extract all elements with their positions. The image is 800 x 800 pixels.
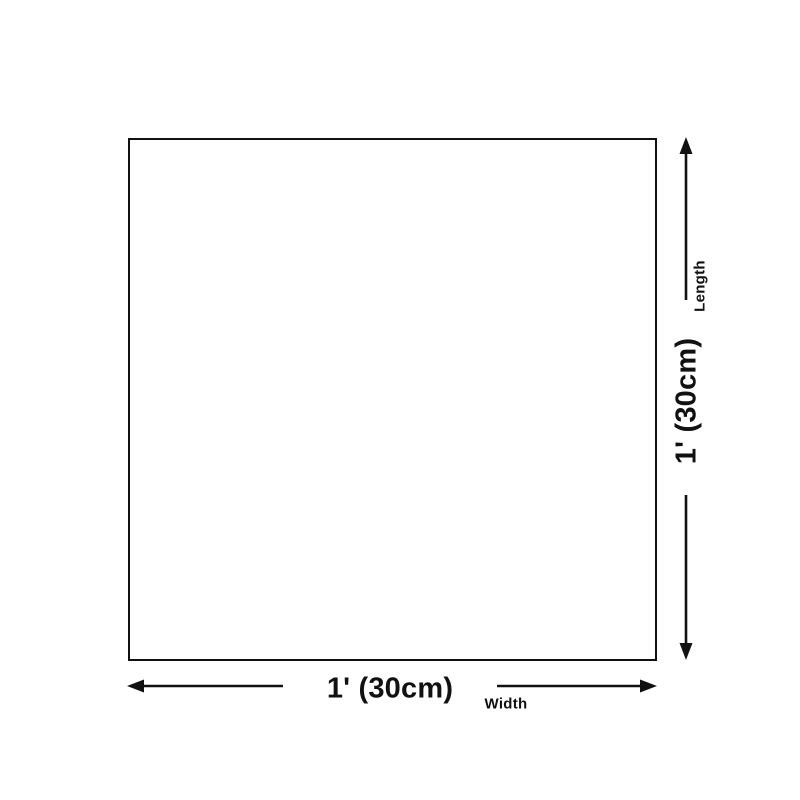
length-value-label: 1' (30cm)	[671, 338, 704, 464]
width-arrowhead-left-icon	[127, 680, 144, 693]
product-outline-box	[128, 138, 657, 661]
width-arrowhead-right-icon	[640, 680, 657, 693]
dimension-diagram: 1' (30cm) Width 1' (30cm) Length	[0, 0, 800, 800]
length-axis-label: Length	[692, 260, 709, 312]
width-axis-label: Width	[484, 696, 527, 713]
length-arrowhead-up-icon	[680, 137, 693, 154]
width-value-label: 1' (30cm)	[327, 673, 453, 706]
length-arrowhead-down-icon	[680, 643, 693, 660]
